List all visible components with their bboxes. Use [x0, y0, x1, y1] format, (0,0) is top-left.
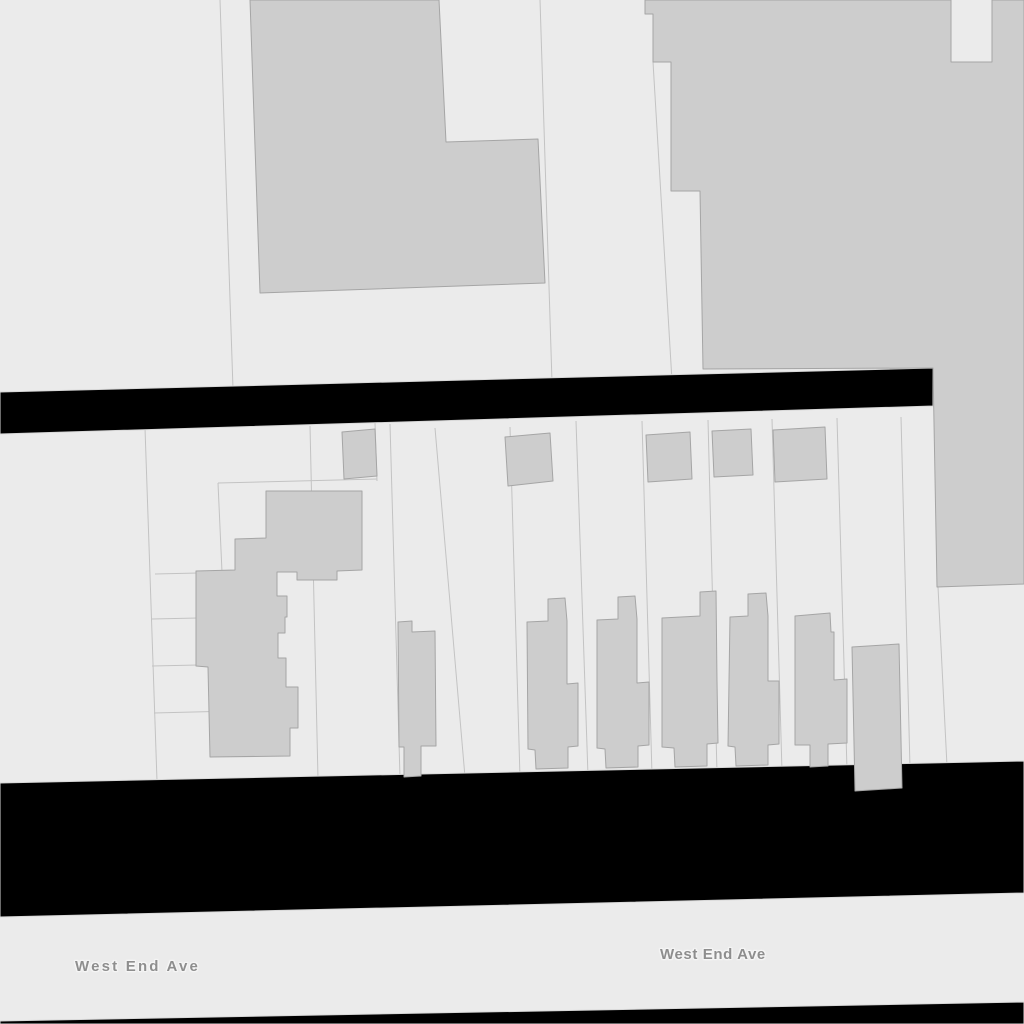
- building-garage-4: [712, 429, 753, 477]
- building-tall-east: [852, 644, 902, 791]
- rowhouse-4: [662, 591, 718, 767]
- map-canvas[interactable]: [0, 0, 1024, 1024]
- building-garage-1: [342, 429, 377, 479]
- building-garage-3: [646, 432, 692, 482]
- map-viewport[interactable]: West End Ave West End Ave: [0, 0, 1024, 1024]
- building-garage-2: [505, 433, 553, 486]
- building-garage-5: [773, 427, 827, 482]
